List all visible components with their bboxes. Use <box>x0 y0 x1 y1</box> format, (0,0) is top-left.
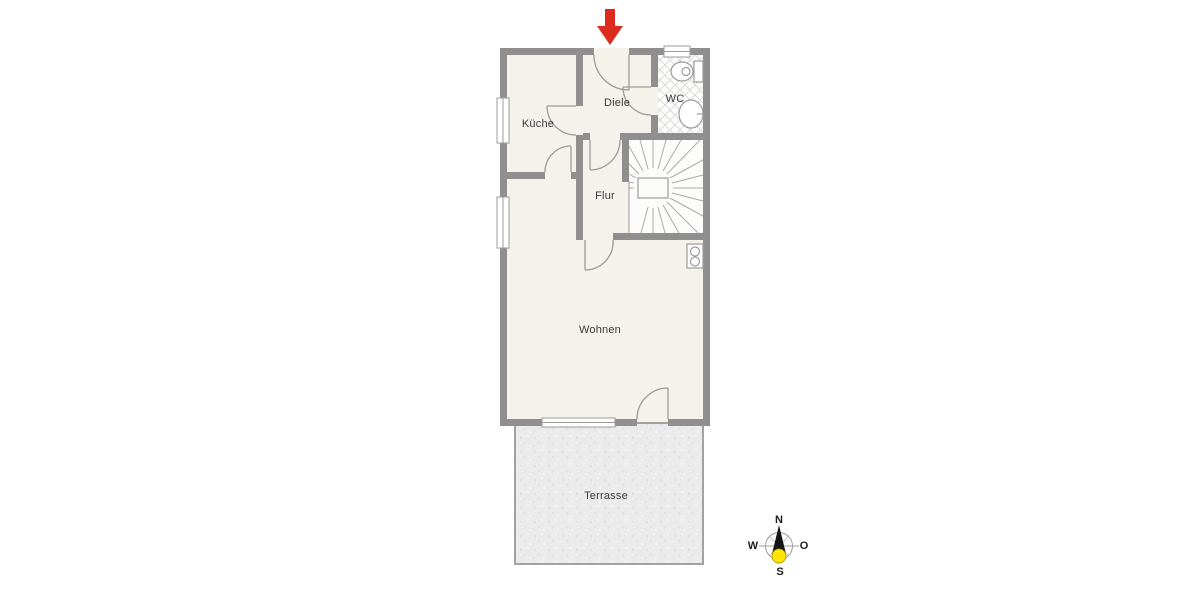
wall-kueche-flur <box>576 135 583 240</box>
wall-kueche-wohnen-stub <box>571 172 583 179</box>
window-wohnen-left <box>497 197 509 248</box>
wall-top-mid <box>629 48 664 55</box>
winder-stairs-icon <box>629 140 703 233</box>
wall-top-left <box>500 48 594 55</box>
window-wohnen-bottom <box>542 418 615 427</box>
wall-left-3 <box>500 248 507 426</box>
room-label-terrasse: Terrasse <box>584 490 628 502</box>
floorplan-drawing <box>0 0 1200 600</box>
compass-label-east: O <box>800 540 809 552</box>
wall-stairs-wohnen <box>613 233 703 240</box>
wall-right <box>703 48 710 426</box>
room-label-diele: Diele <box>604 97 630 109</box>
wall-bottom-left <box>500 419 542 426</box>
compass-south-marker <box>772 549 786 563</box>
room-label-wohnen: Wohnen <box>579 324 621 336</box>
heater-fixture-icon <box>687 244 703 268</box>
window-wc-top <box>664 46 690 57</box>
compass-label-west: W <box>748 540 758 552</box>
stair-core <box>638 178 668 198</box>
compass-label-south: S <box>776 566 783 578</box>
wall-bottom-right <box>668 419 710 426</box>
compass-rose-icon <box>759 525 799 564</box>
wall-kueche-diele-upper <box>576 55 583 106</box>
wall-stairs-left <box>622 140 629 182</box>
wall-kueche-wohnen-left <box>507 172 545 179</box>
floorplan-canvas: Küche Diele WC Flur Wohnen Terrasse N O … <box>0 0 1200 600</box>
room-label-kueche: Küche <box>522 118 554 130</box>
compass-label-north: N <box>775 514 783 526</box>
wall-wc-stairs <box>620 133 703 140</box>
window-kueche-left <box>497 98 509 143</box>
wall-left-2 <box>500 143 507 197</box>
wall-bottom-mid <box>615 419 637 426</box>
toilet-icon <box>671 61 703 82</box>
wall-diele-wc-upper <box>651 55 658 87</box>
wall-left-1 <box>500 48 507 98</box>
room-label-wc: WC <box>666 93 685 105</box>
room-label-flur: Flur <box>595 190 615 202</box>
entrance-arrow-icon <box>597 9 623 45</box>
wall-diele-flur-stub <box>583 133 590 140</box>
